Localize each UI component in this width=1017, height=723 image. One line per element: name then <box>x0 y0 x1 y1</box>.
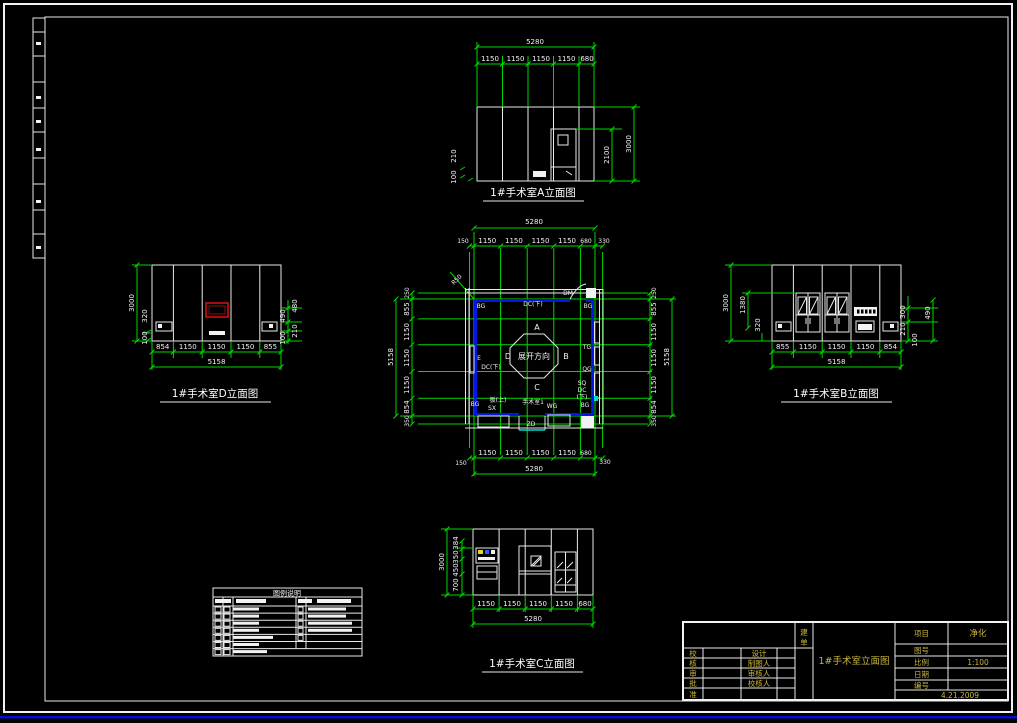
project-value: 净化 <box>969 628 987 639</box>
plan-view: 展开方向 A B C D R50 BG DC(下) BG DM E DC(下) … <box>387 218 676 477</box>
dim-label: 1150 <box>558 55 576 63</box>
dim-label: 1150 <box>505 237 523 245</box>
scale-value: 1:100 <box>967 658 989 667</box>
dim-label: 1150 <box>477 600 495 608</box>
plan-recess-white-box <box>581 416 594 428</box>
dim-label: 450 <box>452 563 460 576</box>
sign-row-char: 审 <box>689 668 697 678</box>
dim-label: 5158 <box>208 358 226 366</box>
dim-label: 490 <box>279 309 287 322</box>
elev-d-title: 1#手术室D立面图 <box>172 387 259 400</box>
sign-row-word: 制图人 <box>748 658 771 668</box>
elev-d-red-window <box>206 303 228 317</box>
dim-label: 854 <box>884 343 898 351</box>
cad-canvas: 5280 1150 1150 1150 1150 680 2100 3000 2… <box>0 0 1017 723</box>
dim-label: 210 <box>291 324 299 337</box>
number-label: 编号 <box>914 680 929 690</box>
elev-a-socket <box>533 171 546 177</box>
elev-c-title: 1#手术室C立面图 <box>489 657 575 670</box>
dir-b: B <box>563 352 569 361</box>
elev-b-cabinet-1 <box>796 293 820 332</box>
plan-label: TG <box>582 344 592 351</box>
dim-label: 300 <box>899 305 907 318</box>
dim-label: 680 <box>580 450 592 457</box>
dim-label: 1150 <box>555 600 573 608</box>
plan-label: DC <box>578 387 587 394</box>
dim-label: 100 <box>450 170 458 183</box>
sign-row-word: 设计 <box>752 648 767 658</box>
date-label: 日期 <box>914 670 929 679</box>
cad-sheet: 5280 1150 1150 1150 1150 680 2100 3000 2… <box>0 0 1017 723</box>
dim-label: 3000 <box>722 294 730 312</box>
elev-c-cabinet <box>477 566 497 579</box>
dim-label: 210 <box>450 149 458 162</box>
dim-label: 150 <box>457 238 469 245</box>
dim-label: 480 <box>291 299 299 312</box>
dim-label: 1150 <box>532 449 550 457</box>
sign-row-char: 批 <box>689 678 697 688</box>
elev-c-door <box>519 546 551 595</box>
dir-c: C <box>534 383 540 392</box>
dim-label: 1150 <box>532 237 550 245</box>
sheet-frame <box>0 4 1017 719</box>
sign-row-char: 核 <box>689 658 697 668</box>
dim-label: 1150 <box>532 55 550 63</box>
plan-label: ZD <box>527 421 536 428</box>
dim-label: 5280 <box>526 38 544 46</box>
dim-label: 680 <box>580 238 592 245</box>
plan-label: DC(下) <box>481 364 501 371</box>
dim-label: 5280 <box>525 465 543 473</box>
dim-label: 3000 <box>438 553 446 571</box>
plan-label: DC(下) <box>523 301 543 308</box>
title-block: 建 单 1#手术室立面图 项目 净化 图号 比例 1:100 日期 编号 4.2… <box>683 622 1008 700</box>
dim-label: 1150 <box>799 343 817 351</box>
date-value: 4.21.2009 <box>941 691 979 700</box>
dim-label: 490 <box>924 306 932 319</box>
scale-label: 比例 <box>914 657 929 667</box>
dim-label: 700 <box>452 578 460 591</box>
dim-label: 320 <box>141 309 149 322</box>
plan-room-label: 手术室1 <box>522 398 544 406</box>
dim-label: 1150 <box>505 449 523 457</box>
dim-label: 1150 <box>478 449 496 457</box>
dim-label: 210 <box>899 322 907 335</box>
dim-label: 100 <box>911 333 919 346</box>
plan-label: SX <box>488 405 496 412</box>
plan-cyan-detail <box>594 396 598 401</box>
dim-label: 5158 <box>663 348 671 366</box>
dim-label: 1150 <box>179 343 197 351</box>
dim-label: 855 <box>650 302 658 315</box>
plan-label: QG <box>582 366 592 373</box>
plan-label: SQ <box>578 380 587 387</box>
elev-d-socket <box>209 331 225 335</box>
dim-label: 5280 <box>525 218 543 226</box>
dim-label: 1150 <box>503 600 521 608</box>
dim-label: 100 <box>141 331 149 344</box>
plan-label: WG <box>547 403 558 410</box>
dim-label: 3000 <box>128 294 136 312</box>
legend-table: 图例说明 <box>213 588 362 656</box>
dim-label: 1150 <box>650 323 658 341</box>
dim-label: 5158 <box>387 348 395 366</box>
dim-label: 330 <box>599 459 611 466</box>
elevation-d: 854 1150 1150 1150 855 5158 3000 320 100… <box>128 263 302 403</box>
dim-label: 1150 <box>403 376 411 394</box>
dim-label: 1150 <box>403 349 411 367</box>
dim-label: 1150 <box>481 55 499 63</box>
dim-label: 350 <box>651 415 658 427</box>
sign-row-word: 校核人 <box>748 678 771 688</box>
elev-b-cabinet-2 <box>825 293 849 332</box>
dim-label: 250 <box>651 287 658 299</box>
dim-label: 384 <box>452 536 460 550</box>
drawing-no-label: 图号 <box>914 646 929 655</box>
plan-label: E <box>477 355 481 362</box>
dim-label: 330 <box>598 238 610 245</box>
dim-label: 1150 <box>650 349 658 367</box>
dim-label: 3000 <box>625 135 633 153</box>
dim-label: 855 <box>403 302 411 315</box>
dim-label: 350 <box>404 415 411 427</box>
dim-label: 250 <box>404 287 411 299</box>
drawing-title: 1#手术室立面图 <box>818 655 889 667</box>
dim-label: 680 <box>578 600 591 608</box>
dim-label: 1150 <box>403 323 411 341</box>
sign-row-char: 准 <box>689 689 697 699</box>
dim-label: 1150 <box>236 343 254 351</box>
dim-label: 1150 <box>856 343 874 351</box>
dir-d: D <box>505 352 511 361</box>
dim-label: 1380 <box>739 296 747 314</box>
plan-label: (下) <box>577 394 588 401</box>
dim-label: 1150 <box>208 343 226 351</box>
dim-label: 1150 <box>828 343 846 351</box>
plan-door-dm <box>570 284 596 299</box>
elev-b-grille <box>854 307 877 332</box>
plan-label: DM <box>563 290 573 297</box>
legend-title: 图例说明 <box>273 589 301 598</box>
plan-recess-left <box>478 416 509 427</box>
octagon-label: 展开方向 <box>518 351 550 361</box>
dim-label: 1150 <box>478 237 496 245</box>
dim-label: 680 <box>580 55 593 63</box>
plan-label: BG <box>584 303 593 310</box>
bottom-blue-line <box>0 716 1017 719</box>
sign-row-word: 审核人 <box>748 668 771 678</box>
dim-label: 5158 <box>828 358 846 366</box>
elevation-a: 5280 1150 1150 1150 1150 680 2100 3000 2… <box>450 38 640 201</box>
dim-label: 1150 <box>507 55 525 63</box>
plan-label: BG <box>477 303 486 310</box>
elev-a-door <box>551 129 576 181</box>
dim-label: 1150 <box>558 237 576 245</box>
elev-a-title: 1#手术室A立面图 <box>490 186 576 199</box>
elevation-c: 1150 1150 1150 1150 680 5280 3000 384 35… <box>438 527 596 673</box>
dim-label: 854 <box>650 400 658 414</box>
dim-label: 150 <box>455 460 467 467</box>
dim-label: 855 <box>264 343 277 351</box>
elev-c-control-panel <box>476 548 498 563</box>
dim-label: 855 <box>776 343 789 351</box>
client-unit-label: 单 <box>800 637 808 647</box>
dir-a: A <box>534 323 540 332</box>
dim-label: 1150 <box>558 449 576 457</box>
sign-row-char: 校 <box>689 648 697 658</box>
dim-label: 320 <box>754 318 762 331</box>
plan-label: BG <box>581 402 590 409</box>
dim-label: 1150 <box>650 376 658 394</box>
dim-label: 1150 <box>529 600 547 608</box>
project-label: 项目 <box>914 629 929 638</box>
elev-b-title: 1#手术室B立面图 <box>793 387 879 400</box>
plan-left-panel <box>470 346 474 373</box>
dim-label: 854 <box>156 343 170 351</box>
plan-label: 板(上) <box>490 396 507 404</box>
plan-label: BG <box>471 401 480 408</box>
margin-strip <box>33 18 45 258</box>
dim-label: 2100 <box>603 146 611 164</box>
elev-c-window <box>555 552 576 592</box>
dim-label: 5280 <box>524 615 542 623</box>
elevation-b: 855 1150 1150 1150 854 5158 3000 1380 32… <box>722 263 938 403</box>
client-unit-label: 建 <box>800 627 808 637</box>
dim-label: 854 <box>403 400 411 414</box>
dim-label: 100 <box>279 331 287 344</box>
dim-label: 350 <box>452 550 460 563</box>
